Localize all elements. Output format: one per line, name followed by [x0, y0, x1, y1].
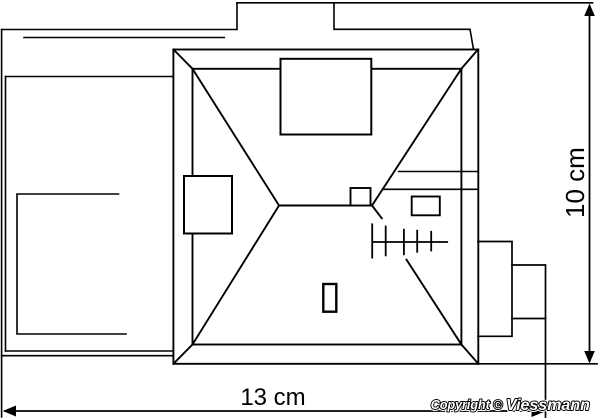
- svg-text:Copyright © Viessmann: Copyright © Viessmann: [431, 397, 590, 414]
- svg-text:13 cm: 13 cm: [240, 384, 305, 411]
- svg-text:10 cm: 10 cm: [560, 147, 590, 218]
